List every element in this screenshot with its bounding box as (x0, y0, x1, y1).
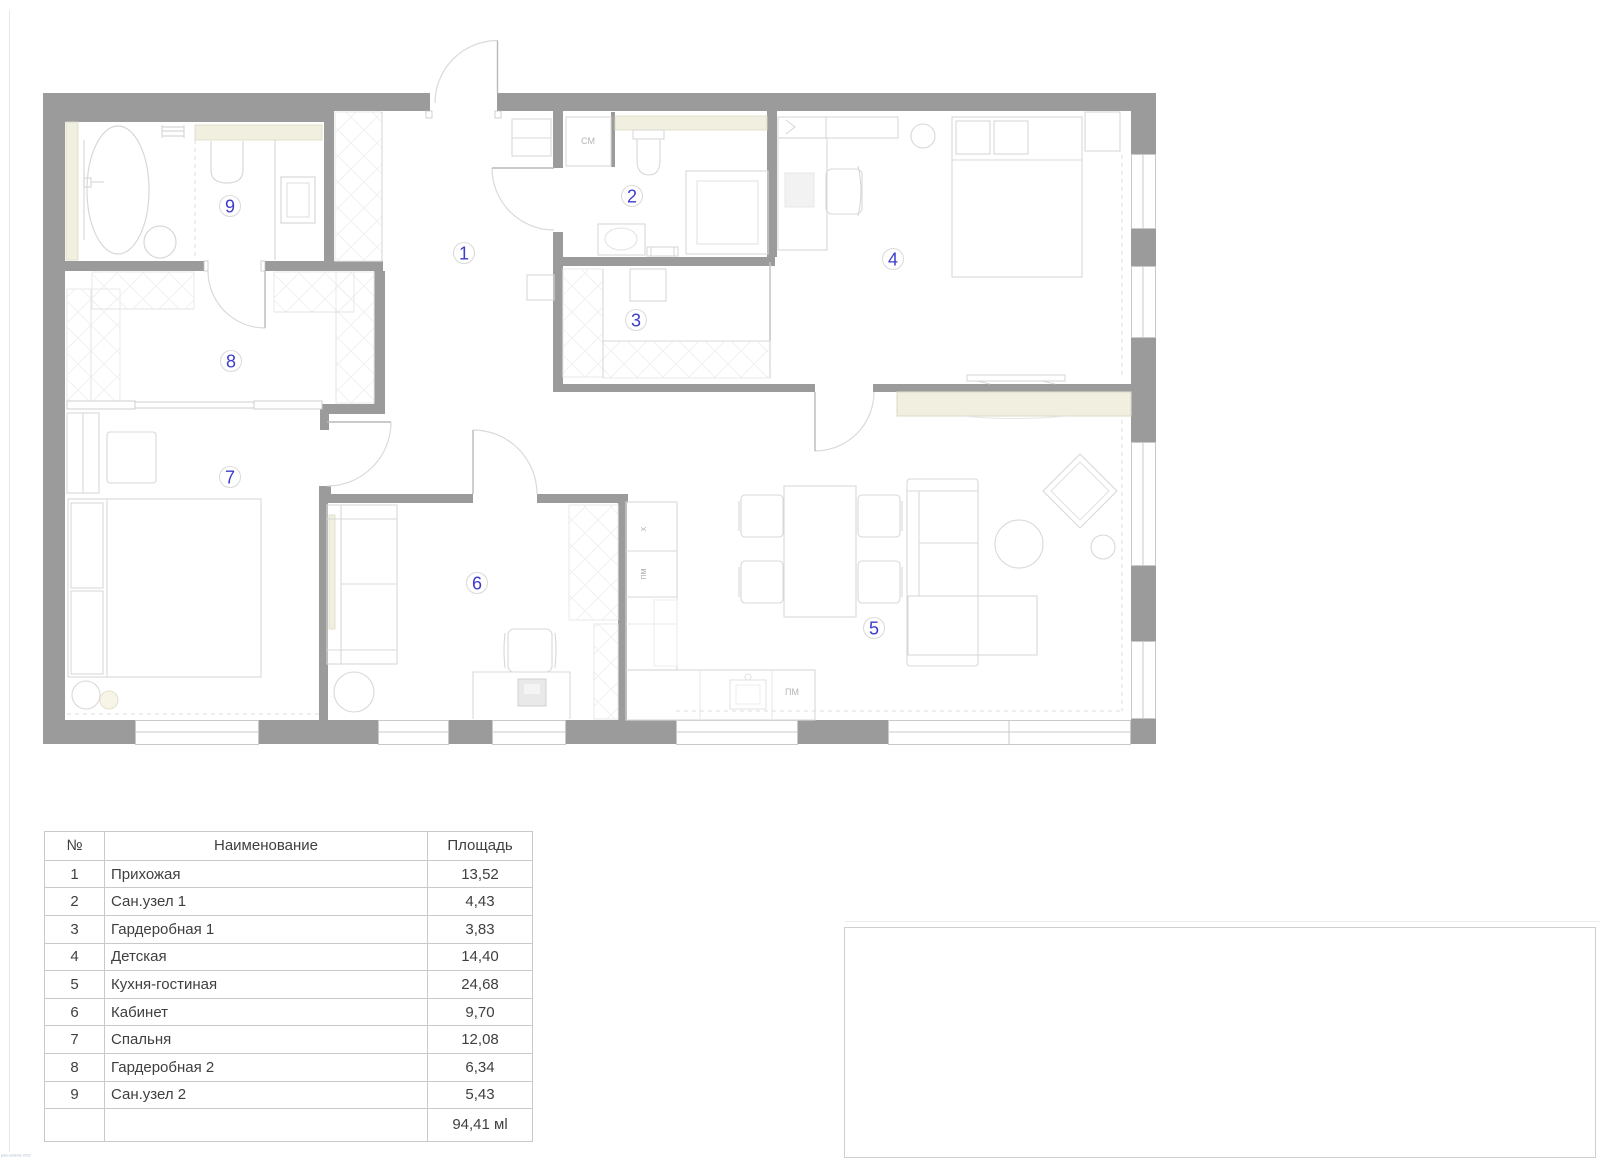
svg-text:ПМ: ПМ (785, 687, 799, 697)
svg-text:9: 9 (225, 197, 235, 217)
svg-text:х: х (638, 526, 648, 531)
svg-text:5: 5 (869, 619, 879, 639)
svg-text:пм: пм (638, 568, 648, 579)
svg-text:1: 1 (459, 244, 469, 264)
svg-text:3: 3 (631, 311, 641, 331)
svg-text:4: 4 (888, 250, 898, 270)
svg-text:6: 6 (472, 574, 482, 594)
svg-text:7: 7 (225, 468, 235, 488)
svg-text:СМ: СМ (581, 136, 595, 146)
svg-text:8: 8 (226, 352, 236, 372)
svg-text:2: 2 (627, 187, 637, 207)
